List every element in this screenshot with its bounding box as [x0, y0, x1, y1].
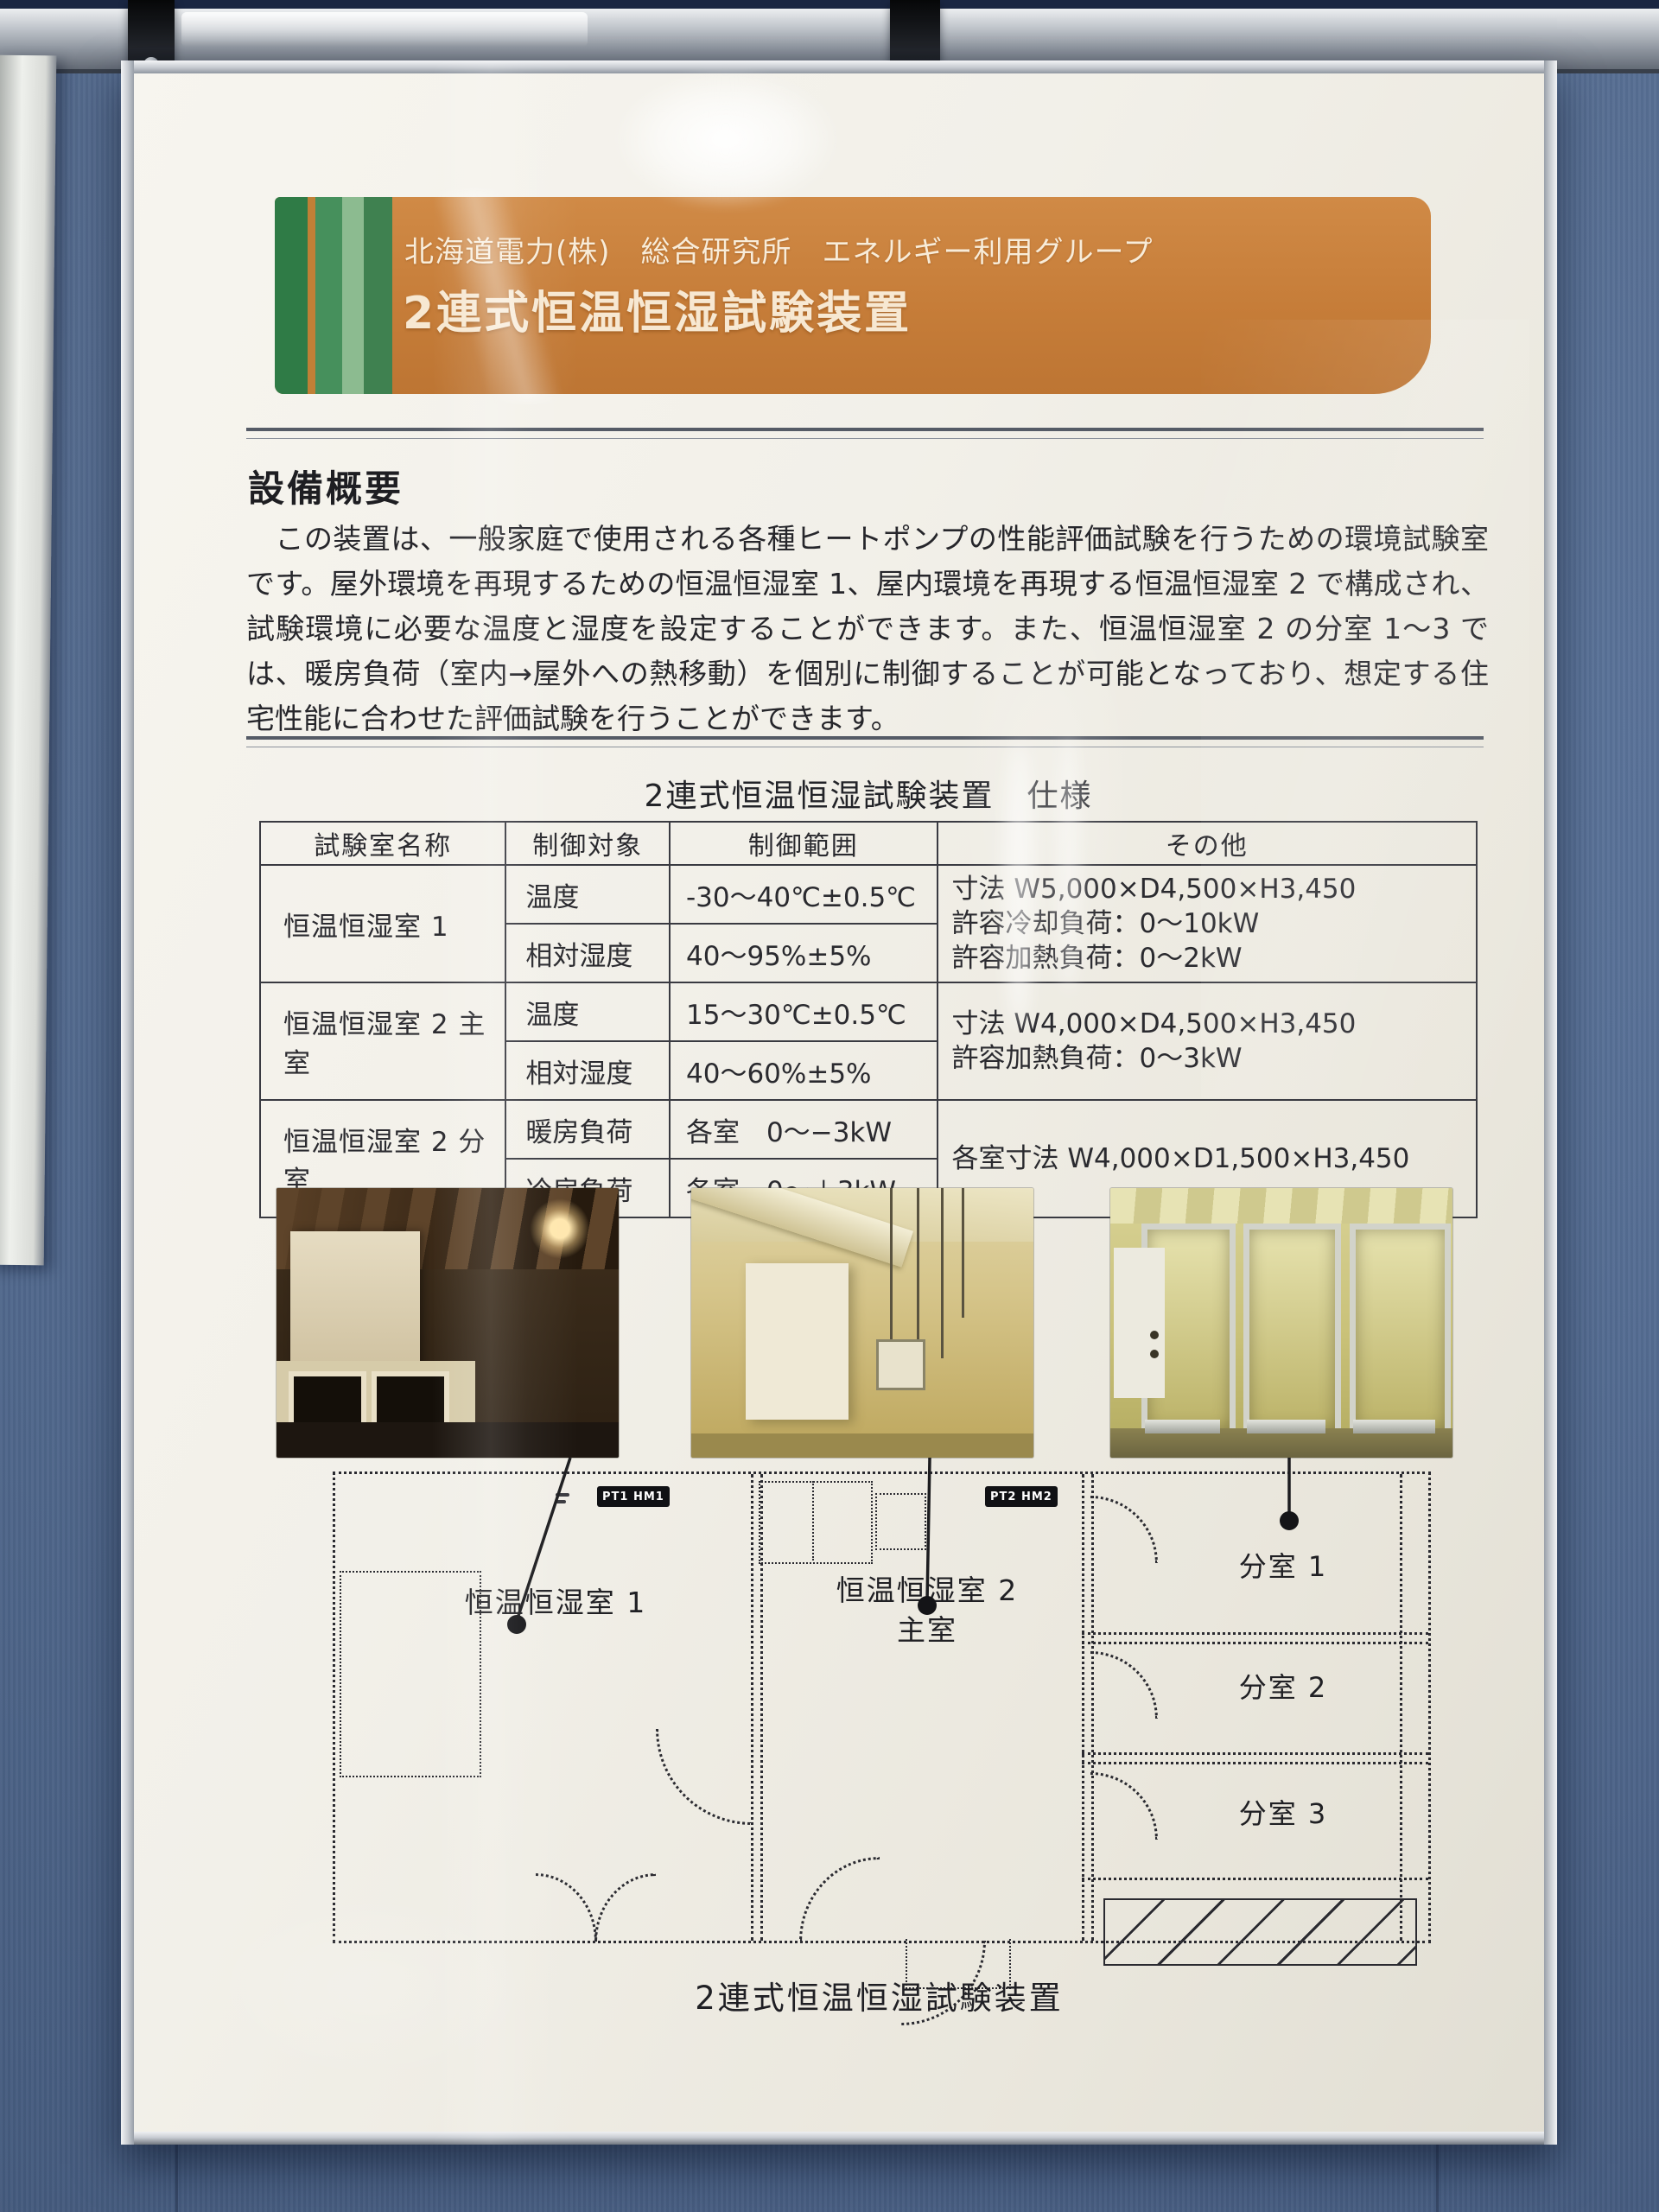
door-swing-arc	[799, 1857, 880, 1942]
photo-chamber2-main-interior	[691, 1188, 1033, 1458]
door-kick-plate	[1145, 1420, 1220, 1433]
spec-other-cell-2: 寸法 W4,000×D4,500×H3,450 許容加熱負荷：0〜3kW	[938, 982, 1478, 1100]
spec-target-cell: 暖房負荷	[505, 1100, 670, 1159]
overview-heading: 設備概要	[248, 460, 404, 512]
poster-frame-bottom	[121, 2132, 1557, 2145]
plan-label-subroom2: 分室 2	[1214, 1666, 1352, 1706]
plan-wall	[1082, 1752, 1428, 1764]
white-door	[1114, 1248, 1165, 1399]
section-divider	[246, 428, 1484, 439]
overview-paragraph: この装置は、一般家庭で使用される各種ヒートポンプの性能評価試験を行うための環境試…	[246, 517, 1489, 741]
door-hardware-dot	[1150, 1331, 1159, 1339]
plan-annotation-mark	[556, 1493, 569, 1497]
door-swing-arc	[1090, 1651, 1158, 1719]
poster-frame-left	[121, 60, 134, 2145]
sensor-tag-chip: PT2 HM2	[985, 1486, 1058, 1507]
hanging-cable	[941, 1188, 944, 1358]
spec-other-line: 許容加熱負荷：0〜3kW	[952, 1041, 1463, 1076]
photo-floor	[691, 1433, 1033, 1458]
header-banner: 北海道電力(株) 総合研究所 エネルギー利用グループ 2連式恒温恒湿試験装置	[275, 197, 1431, 394]
spec-header-row: 試験室名称 制御対象 制御範囲 その他	[260, 822, 1477, 865]
sensor-tag-chip: PT1 HM1	[597, 1486, 670, 1507]
spec-other-line: 寸法 W4,000×D4,500×H3,450	[952, 1007, 1463, 1041]
plan-label-subroom1: 分室 1	[1214, 1545, 1352, 1585]
poster-board: 北海道電力(株) 総合研究所 エネルギー利用グループ 2連式恒温恒湿試験装置 設…	[121, 60, 1557, 2145]
spec-room-cell-2: 恒温恒湿室 2 主室	[260, 982, 505, 1100]
wall-panel	[746, 1263, 849, 1420]
plan-equipment-area	[875, 1493, 926, 1550]
table-row: 恒温恒湿室 2 主室 温度 15〜30℃±0.5℃ 寸法 W4,000×D4,5…	[260, 982, 1477, 1041]
plan-equipment-area	[759, 1481, 873, 1564]
plan-wall	[1082, 1632, 1428, 1644]
subroom-doorway	[1350, 1224, 1451, 1435]
spec-other-line: 許容冷却負荷：0〜10kW	[952, 906, 1463, 941]
plan-annotation-mark	[556, 1500, 566, 1503]
photo-chamber2-subrooms-interior	[1110, 1188, 1452, 1458]
spec-room-cell-1: 恒温恒湿室 1	[260, 865, 505, 982]
adjacent-poster-edge	[0, 55, 56, 1266]
wall-panel-seam	[175, 2145, 178, 2212]
plan-label-subroom3: 分室 3	[1214, 1792, 1352, 1832]
spec-other-line: 許容加熱負荷：0〜2kW	[952, 941, 1463, 976]
plan-wall	[1082, 1878, 1428, 1880]
spec-table: 試験室名称 制御対象 制御範囲 その他 恒温恒湿室 1 温度 -30〜40℃±0…	[259, 821, 1478, 1218]
plan-equipment-divider	[812, 1481, 814, 1560]
plan-label-room2-line2: 主室	[806, 1611, 1048, 1650]
door-hardware-dot	[1150, 1350, 1159, 1358]
plan-label-room2-line1: 恒温恒湿室 2	[806, 1571, 1048, 1611]
door-swing-arc	[1090, 1772, 1158, 1840]
spec-header-target: 制御対象	[505, 822, 670, 865]
table-row: 恒温恒湿室 1 温度 -30〜40℃±0.5℃ 寸法 W5,000×D4,500…	[260, 865, 1477, 924]
poster-title: 2連式恒温恒湿試験装置	[403, 276, 1396, 341]
spec-range-cell: 40〜95%±5%	[670, 924, 938, 982]
spec-target-cell: 温度	[505, 865, 670, 924]
door-swing-arc	[536, 1873, 597, 1942]
junction-box	[876, 1339, 925, 1390]
plan-label-room2: 恒温恒湿室 2 主室	[806, 1571, 1048, 1650]
section-divider	[246, 736, 1484, 747]
plan-hatched-machine-bay	[1103, 1898, 1417, 1966]
spec-header-other: その他	[938, 822, 1478, 865]
spec-header-room: 試験室名称	[260, 822, 505, 865]
spec-target-cell: 相対湿度	[505, 1041, 670, 1100]
table-row: 恒温恒湿室 2 分室 暖房負荷 各室 0〜−3kW 各室寸法 W4,000×D1…	[260, 1100, 1477, 1159]
spec-other-line: 各室寸法 W4,000×D1,500×H3,450	[952, 1141, 1463, 1176]
spec-header-range: 制御範囲	[670, 822, 938, 865]
spec-target-cell: 温度	[505, 982, 670, 1041]
exhibit-wall-scene: 北海道電力(株) 総合研究所 エネルギー利用グループ 2連式恒温恒湿試験装置 設…	[0, 0, 1659, 2212]
plan-wall	[1400, 1474, 1402, 1941]
subroom-doorway	[1243, 1224, 1341, 1435]
door-kick-plate	[1353, 1420, 1435, 1433]
spec-table-title: 2連式恒温恒湿試験装置 仕様	[259, 771, 1478, 816]
floor-plan: PT1 HM1 PT2 HM2 恒温恒湿室 1 恒温恒湿室 2 主室 分室 1 …	[333, 1471, 1431, 1943]
plan-caption: 2連式恒温恒湿試験装置	[333, 1972, 1426, 2018]
photo-chamber1-interior	[276, 1188, 619, 1458]
door-swing-arc	[1090, 1496, 1158, 1563]
spec-range-cell: 各室 0〜−3kW	[670, 1100, 938, 1159]
hanging-cable	[890, 1188, 893, 1344]
banner-green-stripes	[275, 197, 392, 394]
door-kick-plate	[1247, 1420, 1325, 1433]
poster-frame-top	[121, 60, 1557, 73]
spec-range-cell: 40〜60%±5%	[670, 1041, 938, 1100]
wall-panel-seam	[1436, 2134, 1439, 2212]
photo-ceiling	[1110, 1188, 1452, 1224]
spec-range-cell: 15〜30℃±0.5℃	[670, 982, 938, 1041]
plan-label-room1: 恒温恒湿室 1	[439, 1580, 672, 1621]
spec-range-cell: -30〜40℃±0.5℃	[670, 865, 938, 924]
hanging-cable	[962, 1188, 964, 1318]
photo-floor	[276, 1422, 619, 1458]
door-swing-arc	[656, 1729, 752, 1825]
poster-frame-right	[1544, 60, 1557, 2145]
organization-name: 北海道電力(株) 総合研究所 エネルギー利用グループ	[404, 228, 1398, 270]
spec-other-line: 寸法 W5,000×D4,500×H3,450	[952, 872, 1463, 906]
spec-target-cell: 相対湿度	[505, 924, 670, 982]
rail-highlight	[181, 12, 588, 47]
door-swing-arc	[594, 1873, 656, 1942]
spec-other-cell-1: 寸法 W5,000×D4,500×H3,450 許容冷却負荷：0〜10kW 許容…	[938, 865, 1478, 982]
